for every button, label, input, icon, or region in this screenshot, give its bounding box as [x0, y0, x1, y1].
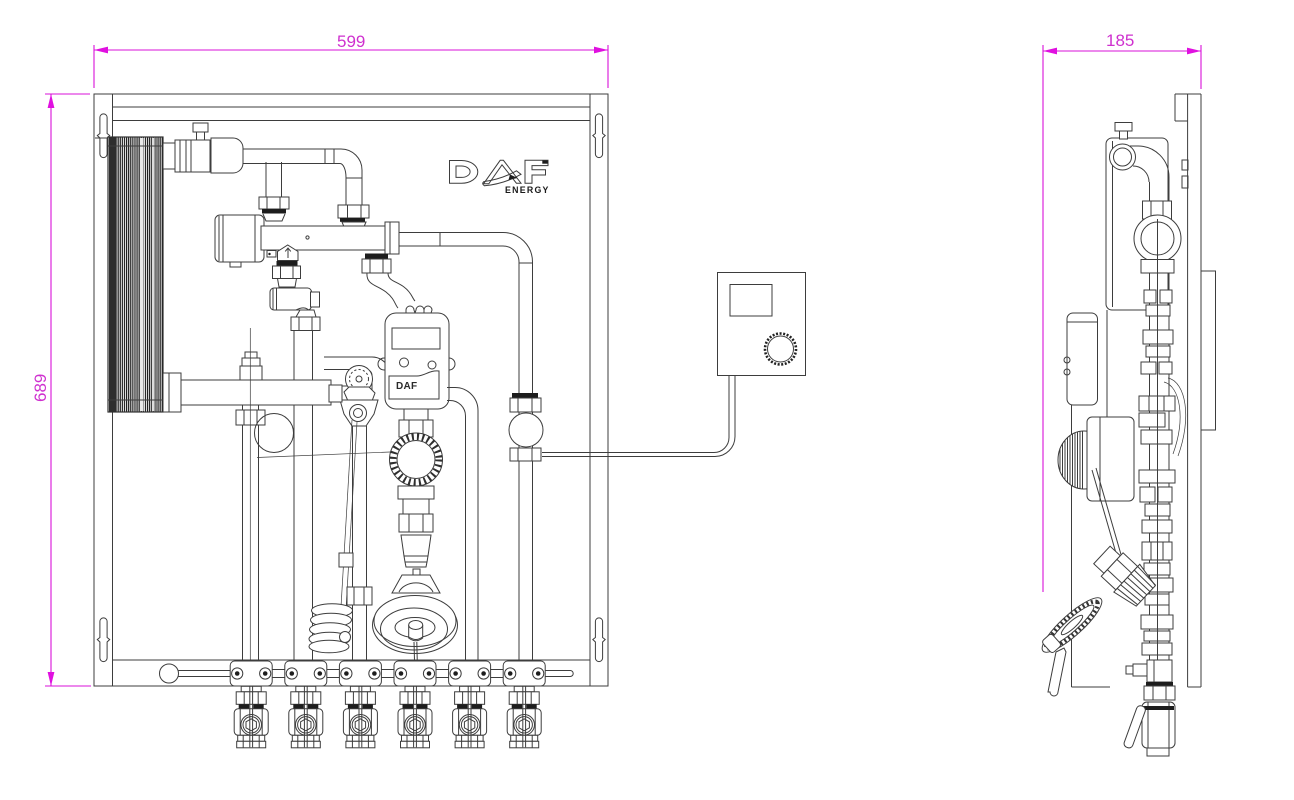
svg-text:599: 599 — [337, 32, 365, 51]
svg-text:185: 185 — [1106, 31, 1134, 50]
svg-text:689: 689 — [31, 374, 50, 402]
svg-text:DAF: DAF — [396, 381, 417, 392]
svg-text:ENERGY: ENERGY — [505, 185, 550, 195]
